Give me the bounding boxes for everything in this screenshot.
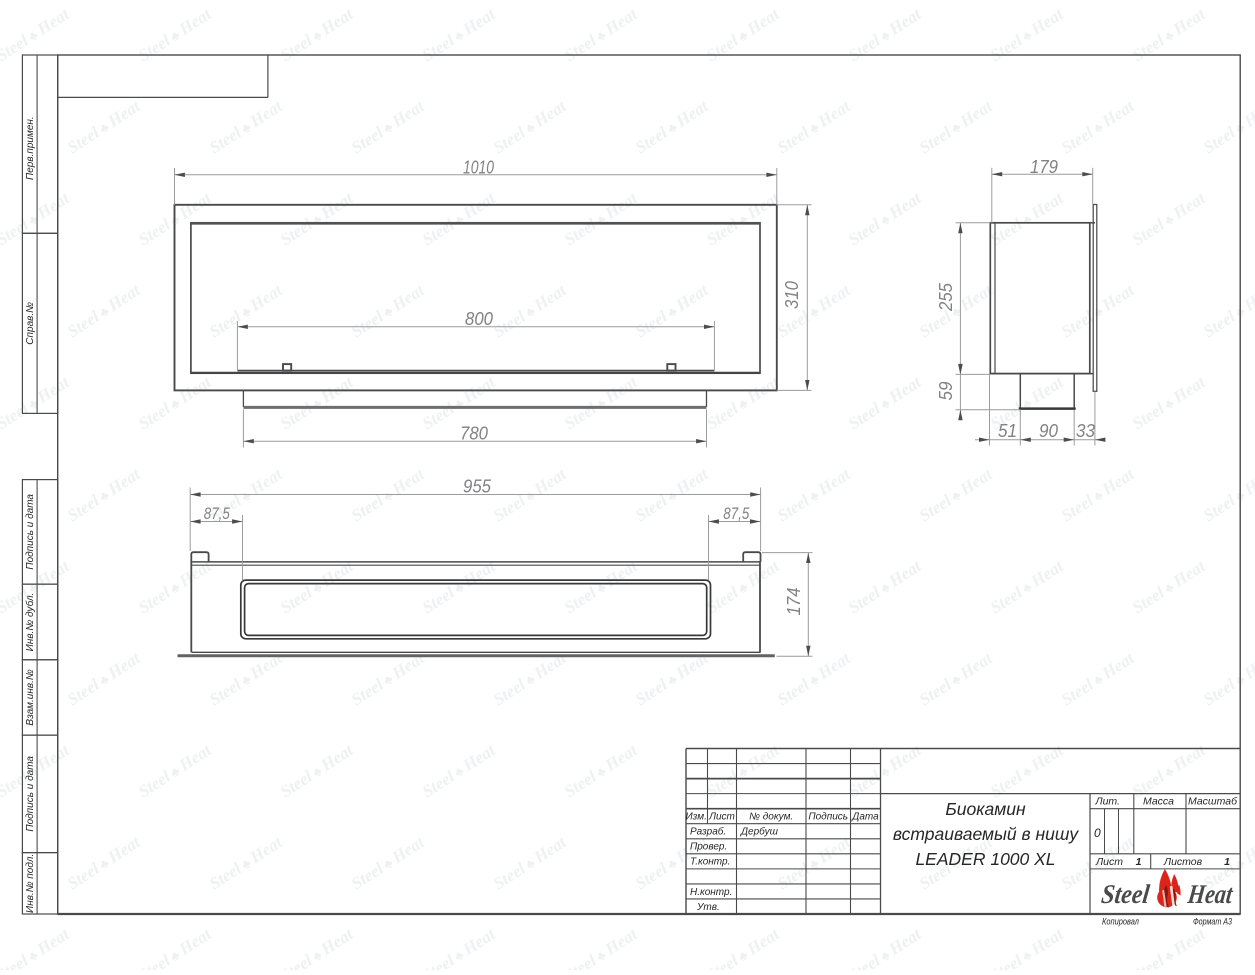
svg-text:1: 1 <box>1224 856 1230 868</box>
svg-text:№ докум.: № докум. <box>749 812 793 823</box>
svg-text:179: 179 <box>1030 157 1058 177</box>
svg-text:0: 0 <box>1094 826 1101 840</box>
svg-text:59: 59 <box>936 382 956 401</box>
svg-text:255: 255 <box>936 282 956 312</box>
svg-text:Масштаб: Масштаб <box>1188 795 1238 807</box>
svg-text:Формат А3: Формат А3 <box>1193 917 1233 928</box>
svg-text:Масса: Масса <box>1143 795 1174 807</box>
svg-text:встраиваемый в нишу: встраиваемый в нишу <box>893 824 1079 844</box>
svg-text:Листов: Листов <box>1163 856 1203 868</box>
svg-text:Лит.: Лит. <box>1094 795 1120 807</box>
svg-text:1: 1 <box>1136 856 1142 868</box>
svg-text:955: 955 <box>463 477 492 497</box>
svg-text:Копировал: Копировал <box>1102 917 1139 928</box>
svg-text:Перв.примен.: Перв.примен. <box>25 116 36 180</box>
svg-text:Провер.: Провер. <box>690 842 727 853</box>
svg-text:1010: 1010 <box>463 158 494 178</box>
svg-text:310: 310 <box>782 281 802 309</box>
svg-text:Инв.№ подл.: Инв.№ подл. <box>25 854 36 913</box>
svg-text:Подпись и дата: Подпись и дата <box>25 756 36 832</box>
svg-text:Т.контр.: Т.контр. <box>690 857 730 868</box>
svg-text:Heat: Heat <box>1185 880 1235 909</box>
svg-text:Лист: Лист <box>708 812 735 823</box>
svg-text:174: 174 <box>784 588 804 616</box>
svg-text:Steel: Steel <box>1100 879 1152 910</box>
svg-text:Н.контр.: Н.контр. <box>690 887 732 898</box>
svg-text:Биокамин: Биокамин <box>945 799 1026 819</box>
svg-text:LEADER 1000 XL: LEADER 1000 XL <box>915 849 1055 869</box>
svg-text:87,5: 87,5 <box>723 504 749 523</box>
svg-text:Подпись: Подпись <box>808 812 848 823</box>
svg-text:Справ.№: Справ.№ <box>25 302 36 345</box>
svg-text:Дата: Дата <box>851 812 879 823</box>
svg-text:Инв.№ дубл.: Инв.№ дубл. <box>24 593 36 652</box>
svg-text:780: 780 <box>460 423 488 443</box>
svg-text:90: 90 <box>1039 421 1058 441</box>
svg-text:33: 33 <box>1076 421 1095 441</box>
svg-text:Изм.: Изм. <box>686 812 707 823</box>
svg-text:800: 800 <box>465 309 493 329</box>
svg-text:Подпись и дата: Подпись и дата <box>25 494 36 570</box>
svg-text:Разраб.: Разраб. <box>690 826 726 838</box>
svg-text:Дербуш: Дербуш <box>740 826 779 838</box>
svg-text:87,5: 87,5 <box>204 504 230 523</box>
svg-text:Взам.инв.№: Взам.инв.№ <box>25 669 36 725</box>
svg-text:Утв.: Утв. <box>696 902 720 913</box>
svg-text:51: 51 <box>998 421 1017 441</box>
svg-text:Лист: Лист <box>1095 856 1123 868</box>
